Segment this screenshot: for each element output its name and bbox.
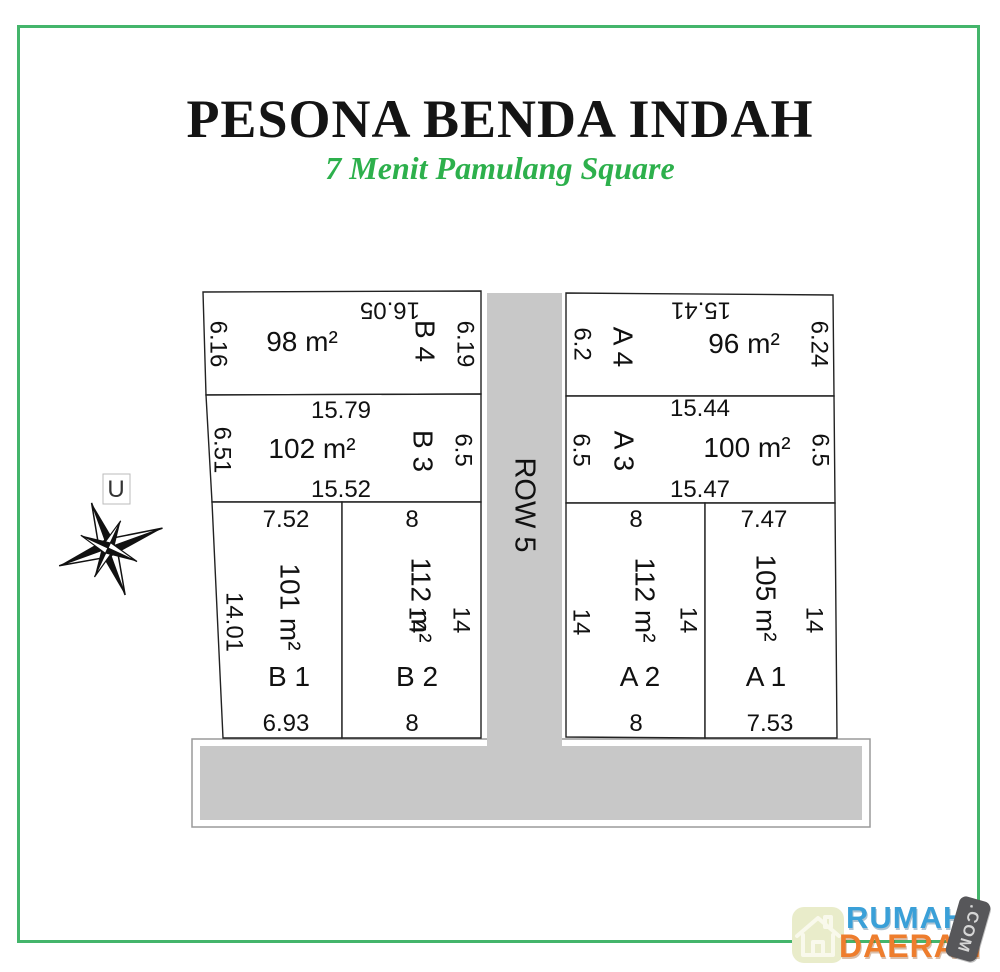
dim-b3-top: 15.79 — [311, 397, 371, 424]
area-a3: 100 m² — [703, 432, 790, 463]
compass-rose-icon: U — [43, 474, 180, 613]
dim-b4-left: 6.16 — [205, 321, 232, 368]
dim-b3-bottom: 15.52 — [311, 476, 371, 503]
logo-tag-text: .COM — [952, 903, 983, 956]
label-b1: B 1 — [268, 661, 310, 692]
row5-road-label: ROW 5 — [508, 457, 540, 552]
dim-a4-top: 15.41 — [671, 297, 731, 324]
label-b2: B 2 — [396, 661, 438, 692]
area-a1: 105 m² — [751, 554, 782, 641]
siteplan-poster: PESONA BENDA INDAH 7 Menit Pamulang Squa… — [0, 0, 1000, 972]
label-a3: A 3 — [609, 431, 640, 471]
dim-b3-left: 6.51 — [209, 427, 236, 474]
compass-north-label: U — [107, 476, 124, 503]
label-b3: B 3 — [408, 430, 439, 472]
dim-a2-left: 14 — [568, 609, 595, 636]
dim-a1-bottom: 7.53 — [747, 710, 794, 737]
dim-a4-right: 6.24 — [806, 321, 833, 368]
dim-a4-left: 6.2 — [569, 327, 596, 360]
dim-a1-top: 7.47 — [741, 506, 788, 533]
label-b4: B 4 — [410, 320, 441, 362]
area-b4: 98 m² — [266, 326, 338, 357]
dim-b4-right: 6.19 — [452, 321, 479, 368]
dim-b1-top: 7.52 — [263, 506, 310, 533]
label-a2: A 2 — [620, 661, 660, 692]
dim-a3-top: 15.44 — [670, 395, 730, 422]
dim-b2-bottom: 8 — [405, 710, 418, 737]
area-a4: 96 m² — [708, 328, 780, 359]
label-a1: A 1 — [746, 661, 786, 692]
area-b2: 112 m² — [406, 557, 437, 642]
logo-house-tile — [792, 907, 844, 963]
dim-b2-right: 14 — [448, 607, 475, 634]
rumahdaerah-logo: RUMAH DAERAH .COM — [780, 898, 998, 970]
dim-a2-right: 14 — [675, 607, 702, 634]
dim-b1-bottom: 6.93 — [263, 710, 310, 737]
dim-a2-bottom: 8 — [629, 710, 642, 737]
dim-b3-right: 6.5 — [450, 433, 477, 466]
area-a2: 112 m² — [630, 557, 661, 642]
label-a4: A 4 — [608, 327, 639, 367]
dim-a3-left: 6.5 — [568, 433, 595, 466]
siteplan-drawing: ROW 5 16.05 6.16 98 m² B 4 6.19 15.79 6.… — [0, 0, 1000, 972]
dim-a2-top: 8 — [629, 506, 642, 533]
area-b3: 102 m² — [268, 433, 355, 464]
area-b1: 101 m² — [275, 563, 306, 650]
dim-b2-top: 8 — [405, 506, 418, 533]
dim-a3-right: 6.5 — [807, 433, 834, 466]
house-icon — [792, 907, 844, 963]
dim-b1-left: 14.01 — [221, 592, 248, 652]
dim-a3-bottom: 15.47 — [670, 476, 730, 503]
dim-a1-right: 14 — [801, 607, 828, 634]
